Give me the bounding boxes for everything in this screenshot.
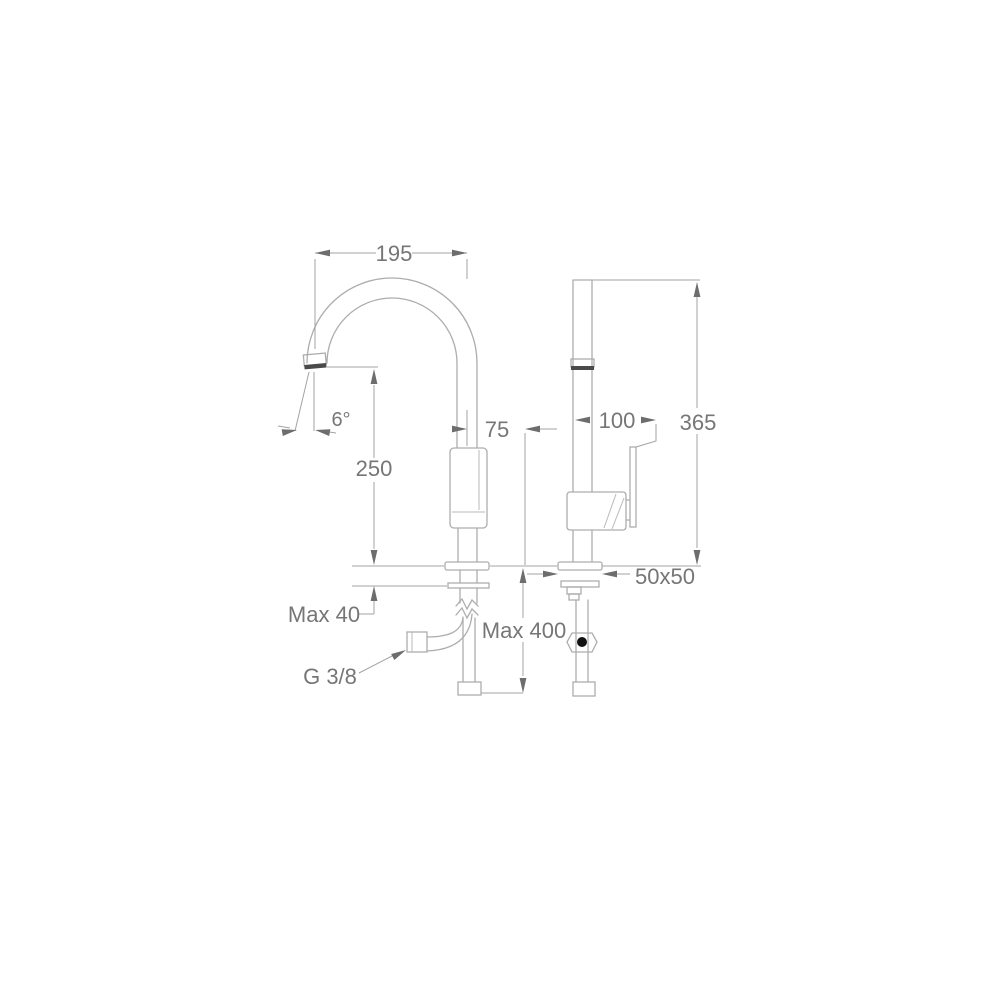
side-base-plate	[558, 562, 602, 570]
shank	[460, 570, 477, 603]
dim-label-total-height: 365	[680, 410, 717, 435]
faucet-body	[450, 448, 487, 528]
dimensions: 195 6° 250 Max 40	[278, 241, 716, 693]
dim-label-handle-length: 100	[599, 408, 636, 433]
dim-label-max-hose-length: Max 400	[482, 618, 566, 643]
side-view-faucet	[558, 280, 636, 696]
mounting-nut	[448, 583, 489, 588]
dim-100: 100	[575, 408, 656, 447]
faucet-neck	[458, 528, 477, 562]
aerator-outlet	[571, 359, 594, 367]
hose-end-fitting-left	[458, 682, 481, 695]
dim-max40: Max 40	[288, 586, 377, 627]
spout-outer-arc	[307, 278, 477, 363]
dim-50x50: 50x50	[527, 564, 695, 589]
faucet-dimension-drawing: 195 6° 250 Max 40	[0, 0, 1000, 1000]
dim-label-deck-thickness: Max 40	[288, 602, 360, 627]
dim-195: 195	[315, 241, 467, 349]
handle-boss-lines	[604, 494, 624, 529]
side-neck	[573, 530, 592, 562]
hex-fitting-dot	[577, 637, 587, 647]
dim-75: 75	[452, 410, 557, 565]
dim-g38: G 3/8	[303, 647, 408, 689]
pipe-break-upper	[456, 599, 478, 609]
spout-inner-arc	[327, 298, 457, 363]
dim-6deg: 6°	[278, 372, 351, 436]
front-view-faucet	[303, 278, 489, 695]
dim-label-spout-reach: 195	[376, 241, 413, 266]
technical-drawing-canvas: 195 6° 250 Max 40	[0, 0, 1000, 1000]
column	[573, 280, 592, 492]
g38-fitting	[407, 632, 427, 652]
hose-end-fitting-right	[573, 682, 595, 696]
aerator-outlet-dark	[571, 366, 594, 370]
dim-label-base-size: 50x50	[635, 564, 695, 589]
dim-label-spout-height: 250	[356, 456, 393, 481]
dim-250: 250	[327, 367, 392, 565]
dim-max400: Max 400	[481, 568, 566, 693]
dim-label-connection-thread: G 3/8	[303, 664, 357, 689]
side-shank-stub	[567, 587, 581, 594]
lever-handle	[630, 447, 636, 527]
base-plate	[445, 562, 489, 570]
curved-hose-outer	[427, 614, 472, 651]
side-mounting-nut	[561, 581, 599, 587]
dim-label-spout-angle: 6°	[331, 409, 350, 431]
dim-label-body-offset: 75	[485, 417, 509, 442]
side-shank-stub2	[569, 594, 579, 600]
side-body	[567, 492, 626, 530]
curved-hose-inner	[427, 617, 463, 637]
